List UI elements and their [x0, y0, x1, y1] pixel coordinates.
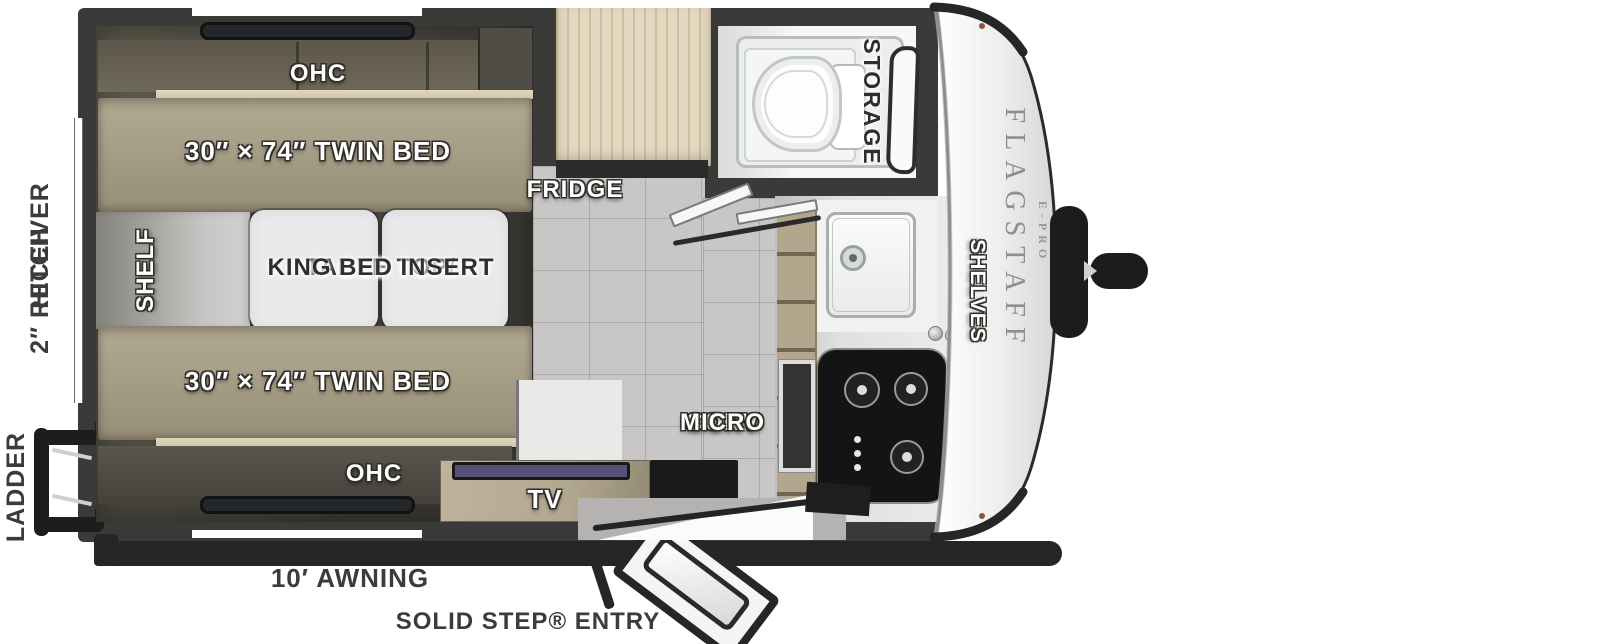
receiver-hitch-line2: HITCH	[26, 227, 55, 308]
cooktop-knob-dot	[854, 450, 861, 457]
cap-rivet	[979, 513, 985, 519]
ohc-label-bottom: OHC	[330, 460, 418, 488]
table-label: TABLE TOP/ KING BED INSERT	[236, 232, 526, 304]
burner	[844, 372, 880, 408]
sink-drain-center	[849, 254, 857, 262]
receiver-hitch-label: 2″ RECEIVER HITCH	[11, 128, 69, 408]
hitch-coupler	[1050, 206, 1088, 338]
front-cap-graphic	[900, 0, 1200, 644]
conv-micro-label: CONV MICRO	[655, 394, 790, 452]
shelf-platform	[96, 212, 250, 329]
ladder-label: LADDER	[2, 402, 30, 572]
entry-label: SOLID STEP® ENTRY	[392, 606, 664, 638]
corner-cabinet	[478, 28, 532, 96]
bedroom-area: OHC 30″ × 74″ TWIN BED TABLE TOP/ KING B…	[96, 26, 533, 522]
twin-bed-bottom-label: 30″ × 74″ TWIN BED	[126, 364, 510, 398]
ladder-arm-bottom	[38, 517, 104, 532]
cap-rivet	[979, 23, 985, 29]
ohc-label-top: OHC	[274, 60, 362, 88]
storage-label: STORAGE	[859, 32, 885, 172]
wardrobe-panel	[516, 380, 622, 462]
cooktop-knob-dot	[854, 464, 861, 471]
shelf-label: SHELF	[133, 210, 159, 330]
rear-wall-window-strip	[74, 118, 83, 403]
fridge-cabinet	[551, 8, 711, 166]
tv-label: TV	[500, 484, 590, 514]
bedroom-window-bottom	[200, 496, 415, 514]
cooktop-knob-dot	[854, 436, 861, 443]
fridge-label: FRIDGE	[510, 176, 640, 204]
hitch-knob	[1090, 253, 1148, 289]
conv-label-line2: MICRO	[680, 409, 765, 437]
top-wall-window-strip	[192, 8, 422, 16]
brand-flagstaff: FLAGSTAFF	[996, 80, 1032, 380]
tv-screen	[452, 462, 630, 480]
table-label-line2: KING BED INSERT	[267, 251, 494, 285]
twin-bed-top-label: 30″ × 74″ TWIN BED	[126, 134, 510, 168]
toilet-seat-outline	[764, 70, 828, 138]
awning-bracket	[94, 534, 118, 566]
cushion-seam	[426, 42, 429, 90]
brand-epro: E-PRO	[1035, 162, 1051, 302]
awning-label: 10′ AWNING	[240, 562, 460, 594]
bedroom-window-top	[200, 22, 415, 40]
entry-threshold	[805, 482, 871, 516]
bottom-wall-window-strip	[192, 530, 422, 538]
media-console	[650, 460, 738, 500]
ladder-arm-top	[38, 430, 104, 445]
floorplan-canvas: OHC 30″ × 74″ TWIN BED TABLE TOP/ KING B…	[0, 0, 1600, 644]
shelves-label: SHELVES	[965, 226, 989, 356]
